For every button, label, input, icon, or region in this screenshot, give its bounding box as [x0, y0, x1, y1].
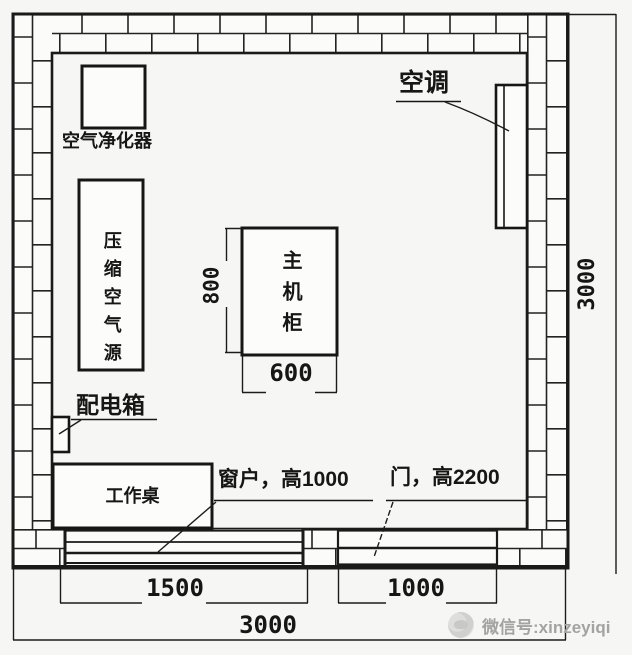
wechat-logo-icon — [448, 612, 474, 638]
watermark: 微信号:xinzeyiqi — [448, 612, 610, 638]
door-symbol — [338, 531, 497, 565]
main-cabinet-label: 主机柜 — [279, 250, 301, 343]
dimension-3000-bottom: 3000 — [236, 612, 300, 638]
dimension-800: 800 — [200, 256, 223, 316]
distribution-box-label: 配电箱 — [76, 393, 145, 418]
work-desk-label: 工作桌 — [53, 487, 212, 507]
dimension-1500: 1500 — [143, 575, 207, 601]
wall-top — [13, 14, 568, 53]
air-conditioner-label: 空调 — [399, 70, 449, 98]
dimension-1000: 1000 — [384, 575, 448, 601]
dimension-800-lines — [225, 228, 242, 353]
floor-plan-canvas — [0, 0, 632, 655]
distribution-box-box — [52, 417, 69, 452]
wall-bottom-pier-segment — [304, 529, 338, 568]
dimension-3000-right: 3000 — [576, 253, 600, 315]
wall-bottom-right-segment — [497, 529, 568, 568]
window-symbol — [64, 529, 304, 567]
floor-plan-page: 空气净化器 压缩空气源 主机柜 空调 配电箱 工作桌 窗户，高1000 门，高2… — [0, 0, 632, 655]
compressed-air-label: 压缩空气源 — [101, 231, 121, 371]
wall-right — [527, 14, 568, 568]
watermark-text: 微信号:xinzeyiqi — [482, 613, 610, 638]
door-annotation: 门，高2200 — [390, 466, 500, 489]
wall-bottom-left-segment — [13, 529, 64, 568]
window-annotation: 窗户，高1000 — [218, 468, 349, 491]
wall-left — [13, 14, 52, 568]
dimension-600: 600 — [259, 360, 323, 386]
air-conditioner-box — [496, 85, 527, 228]
air-purifier-label: 空气净化器 — [62, 132, 152, 152]
air-purifier-box — [82, 66, 145, 128]
